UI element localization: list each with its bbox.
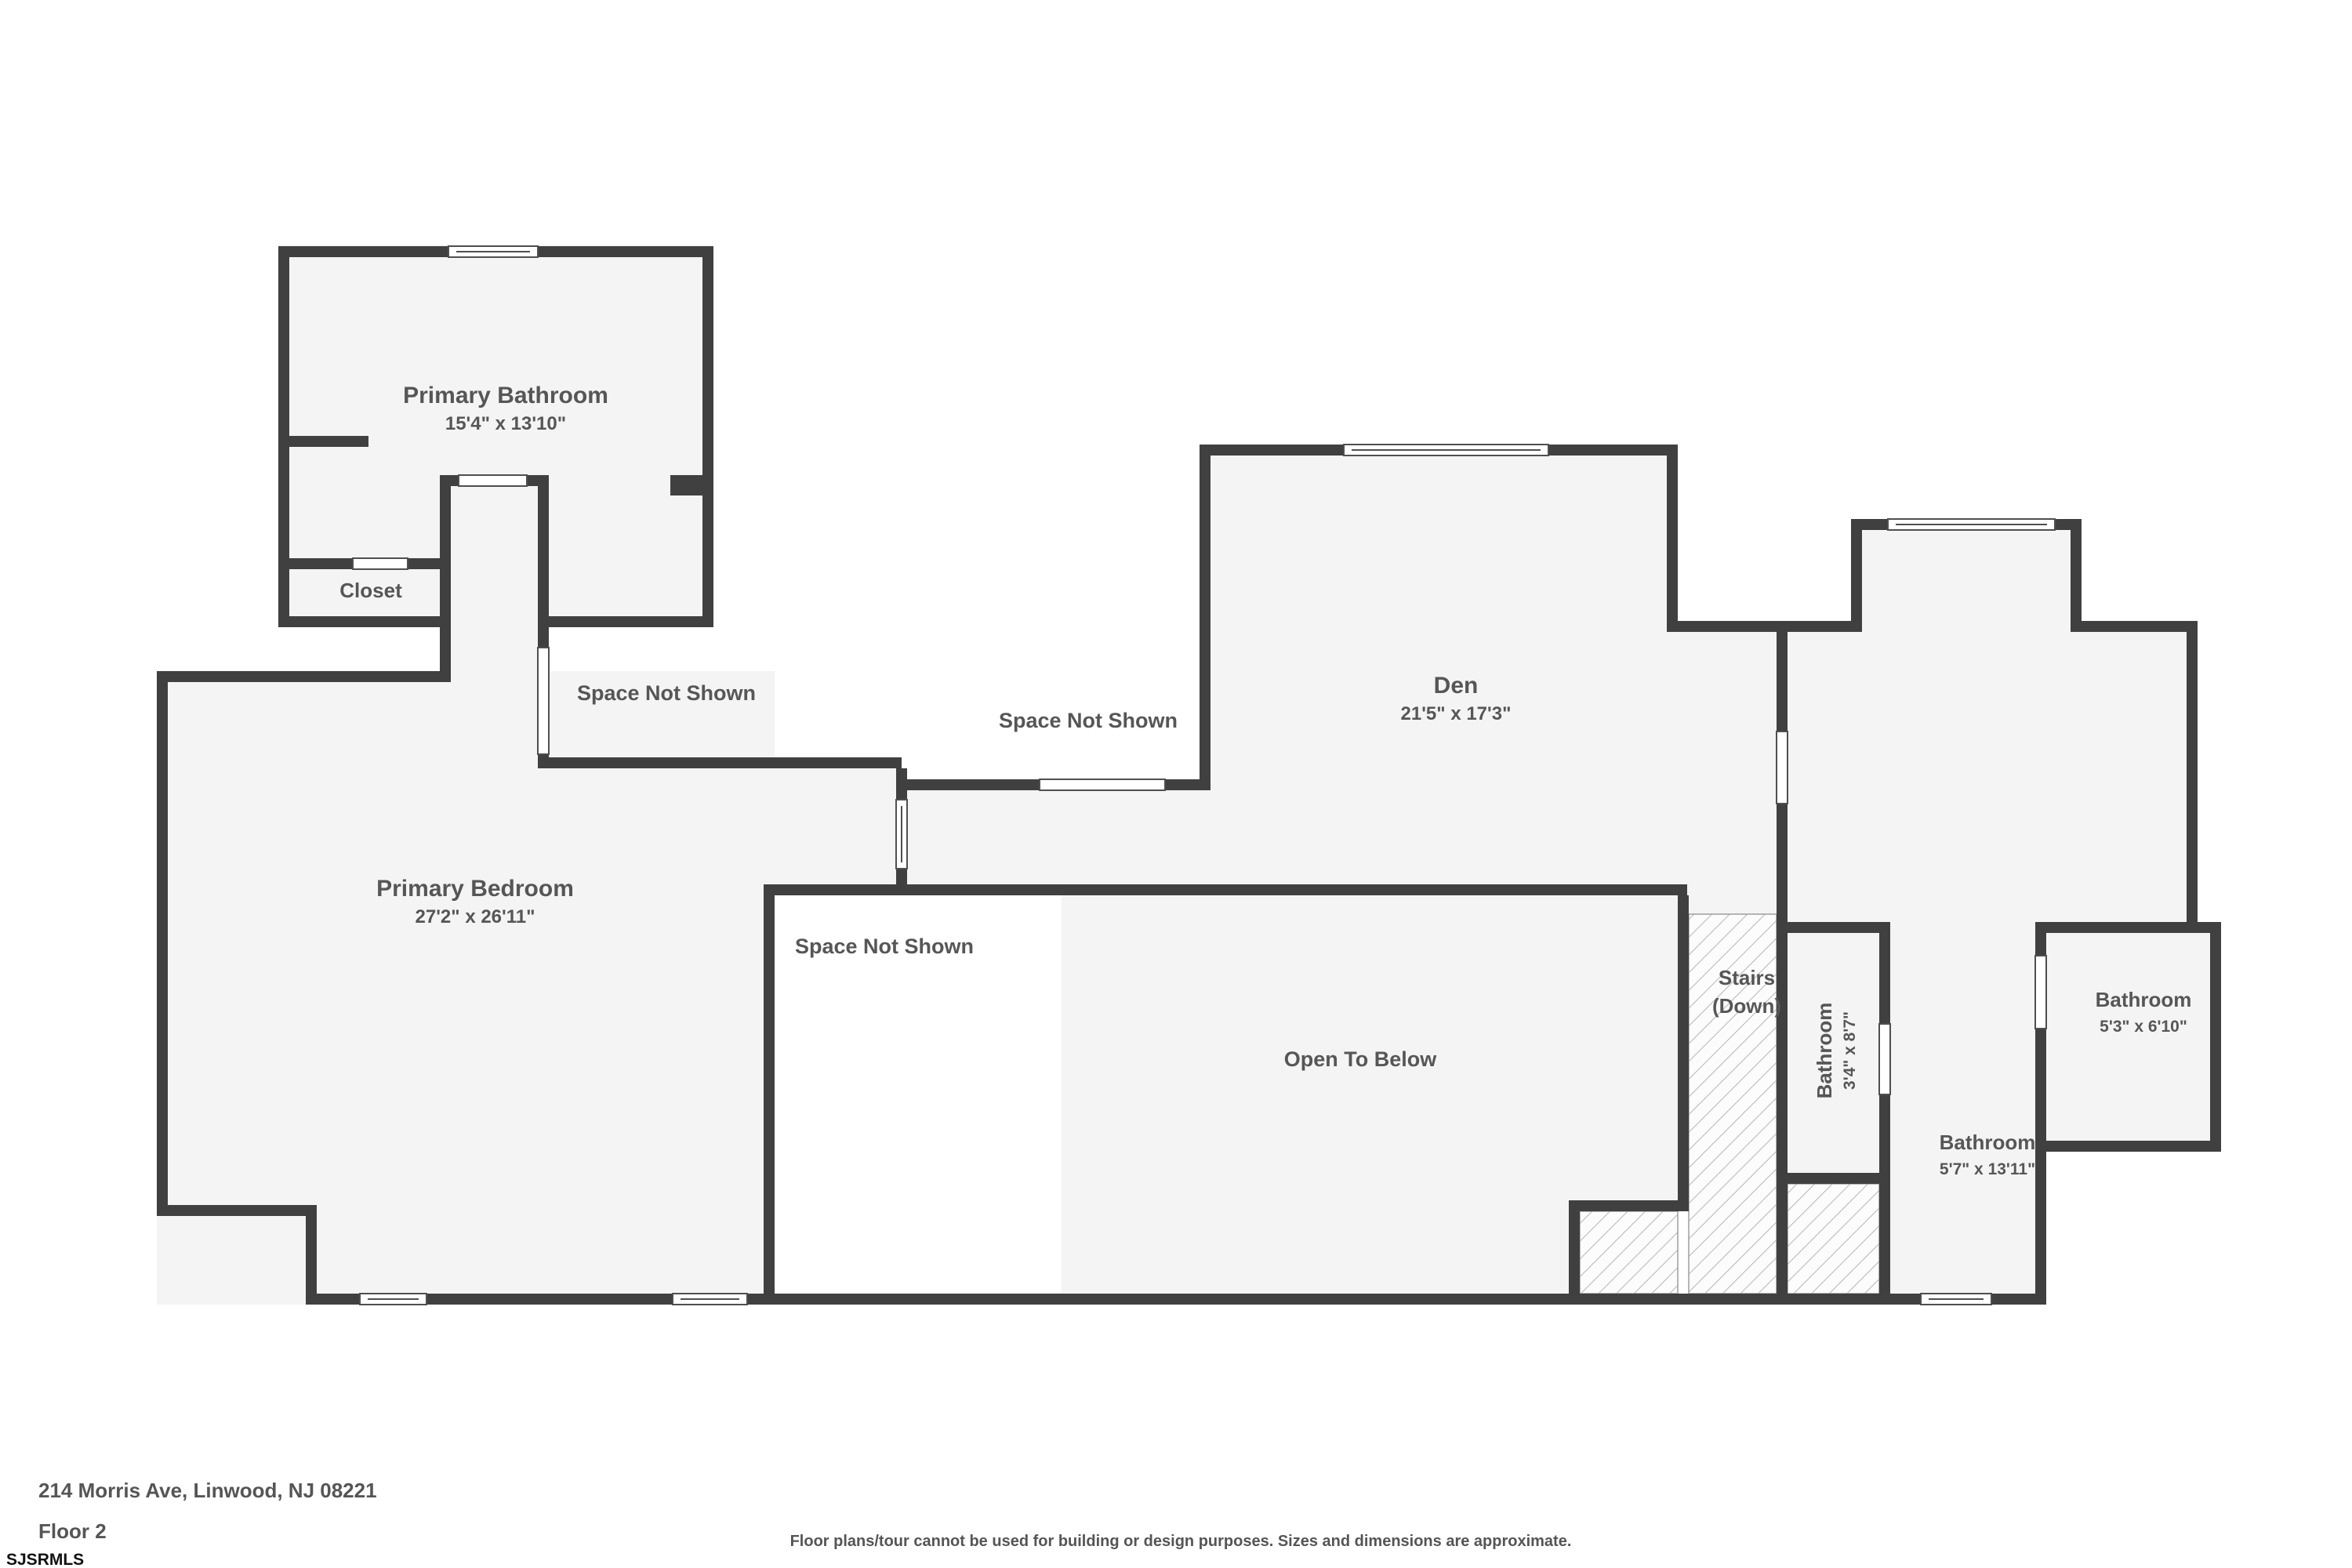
room-floor	[1879, 922, 2046, 1305]
room-name: Primary Bathroom	[403, 383, 608, 408]
wall	[1777, 1173, 1890, 1184]
wall	[764, 884, 775, 1305]
wall	[278, 616, 451, 627]
room-floor	[2035, 922, 2221, 1152]
room-dimensions: (Down)	[1712, 994, 1781, 1018]
room-dimensions: 5'3" x 6'10"	[2100, 1018, 2187, 1036]
wall	[278, 436, 368, 447]
room-name: Open To Below	[1284, 1047, 1437, 1071]
wall	[2035, 1141, 2221, 1152]
wall	[2035, 922, 2221, 933]
room-name: Space Not Shown	[795, 935, 974, 958]
wall	[2071, 621, 2198, 632]
room-name: Closet	[339, 579, 402, 602]
door-opening	[353, 558, 408, 569]
wall	[1777, 621, 1788, 1305]
room-name: Bathroom	[1940, 1131, 2036, 1154]
room-floor	[1777, 621, 2198, 933]
room-floor	[1851, 519, 2082, 632]
room-dimensions: 27'2" x 26'11"	[416, 906, 535, 927]
wall	[1777, 922, 1890, 933]
floor-plan-page: Primary Bathroom15'4" x 13'10"ClosetSpac…	[0, 0, 2352, 1568]
door-opening	[538, 648, 549, 754]
wall	[1678, 895, 1689, 1211]
wall	[157, 1205, 317, 1216]
wall	[157, 671, 168, 1216]
wall	[538, 616, 713, 627]
room-name: Bathroom	[1813, 1003, 1836, 1099]
room-name: Den	[1434, 673, 1479, 699]
room-name: Primary Bedroom	[376, 876, 574, 902]
stairs-hatch	[1788, 1184, 1879, 1294]
door-opening	[459, 475, 527, 486]
room-floor	[1210, 445, 1678, 895]
wall	[1667, 445, 1678, 632]
room-name: Space Not Shown	[999, 709, 1178, 732]
wall	[1200, 445, 1210, 790]
wall	[1569, 1200, 1580, 1305]
door-opening	[2035, 956, 2046, 1029]
wall	[702, 246, 713, 627]
footer-disclaimer: Floor plans/tour cannot be used for buil…	[790, 1533, 1572, 1550]
room-dimensions: 3'4" x 8'7"	[1841, 1011, 1859, 1090]
room-label-space-not-shown-lower: Space Not Shown	[795, 935, 974, 958]
wall	[440, 475, 451, 682]
door-opening	[1040, 779, 1165, 790]
room-name: Space Not Shown	[577, 681, 756, 705]
room-label-space-not-shown-upper: Space Not Shown	[577, 681, 756, 705]
room-floor	[1678, 621, 1788, 914]
room-label-closet: Closet	[339, 579, 402, 602]
room-label-space-not-shown-middle: Space Not Shown	[999, 709, 1178, 732]
room-label-bathroom-3-4: Bathroom3'4" x 8'7"	[1813, 1003, 1859, 1099]
floor-plan-canvas: Primary Bathroom15'4" x 13'10"ClosetSpac…	[0, 0, 2352, 1568]
wall	[764, 884, 1687, 895]
wall	[1851, 519, 1862, 632]
door-opening	[1777, 731, 1788, 804]
wall	[2187, 621, 2198, 933]
wall	[306, 1205, 317, 1305]
wall	[2071, 519, 2082, 632]
wall	[670, 475, 702, 495]
wall	[1879, 922, 1890, 1305]
room-name: Bathroom	[2096, 988, 2192, 1011]
room-dimensions: 15'4" x 13'10"	[445, 413, 566, 434]
room-dimensions: 5'7" x 13'11"	[1940, 1160, 2035, 1178]
room-name: Stairs	[1719, 966, 1775, 989]
wall	[1667, 621, 1862, 632]
room-floor	[451, 478, 538, 687]
wall	[157, 671, 451, 682]
room-dimensions: 21'5" x 17'3"	[1401, 703, 1512, 724]
stairs-hatch	[1580, 1211, 1678, 1294]
footer-address: 214 Morris Ave, Linwood, NJ 08221	[38, 1479, 377, 1502]
wall	[2210, 922, 2221, 1152]
door-opening	[1879, 1024, 1890, 1094]
room-label-open-to-below: Open To Below	[1284, 1047, 1437, 1071]
wall	[538, 757, 902, 768]
mls-brand-label: SJSRMLS	[6, 1551, 84, 1568]
footer-floor-label: Floor 2	[38, 1519, 107, 1543]
wall	[1569, 1200, 1689, 1211]
